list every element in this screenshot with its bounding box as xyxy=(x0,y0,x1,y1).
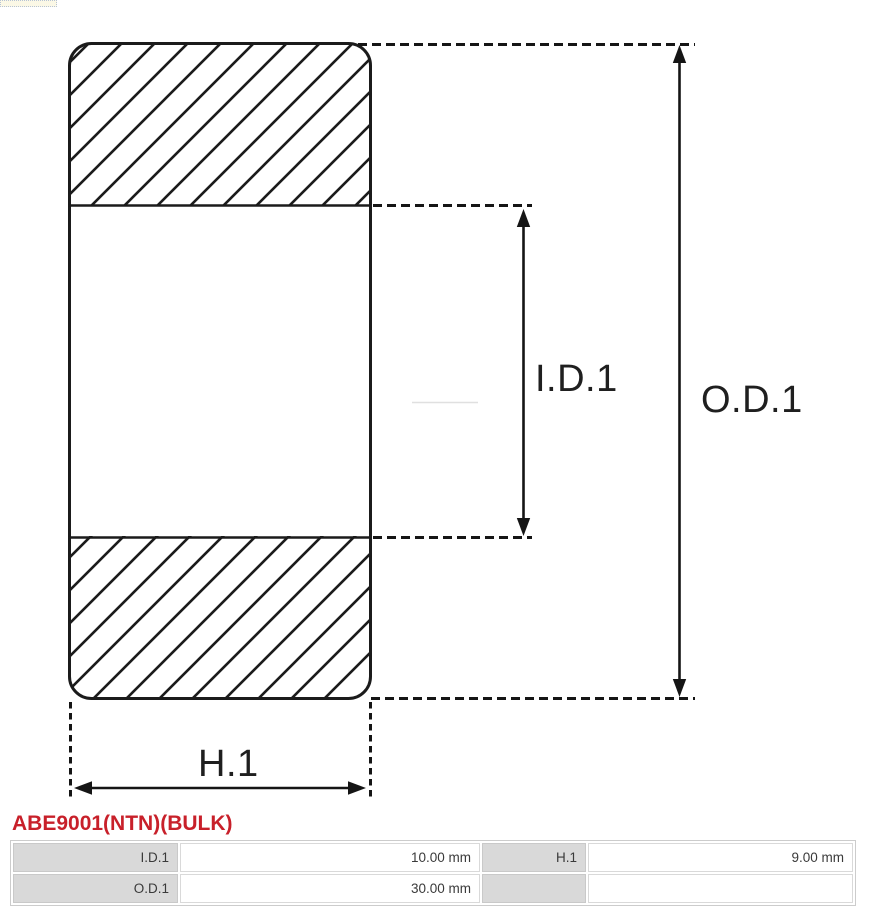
spec-label-cell: I.D.1 xyxy=(13,843,178,872)
arrowhead-right-icon xyxy=(348,781,366,794)
spec-label-cell: O.D.1 xyxy=(13,874,178,903)
spec-table-row: I.D.1 10.00 mm H.1 9.00 mm xyxy=(13,843,853,872)
id-dimension-label: I.D.1 xyxy=(535,360,618,398)
spec-table: I.D.1 10.00 mm H.1 9.00 mm O.D.1 30.00 m… xyxy=(10,840,856,906)
bearing-cross-section xyxy=(68,42,478,700)
id-dimension-arrow xyxy=(517,209,530,536)
part-number-title[interactable]: ABE9001(NTN)(BULK) xyxy=(12,812,233,835)
hatch-bottom-band xyxy=(68,536,372,700)
arrowhead-up-icon xyxy=(673,45,686,63)
arrowhead-left-icon xyxy=(74,781,92,794)
spec-value-cell xyxy=(588,874,853,903)
od-dimension-label: O.D.1 xyxy=(701,381,803,419)
spec-value-cell: 10.00 mm xyxy=(180,843,480,872)
spec-value-cell: 30.00 mm xyxy=(180,874,480,903)
arrowhead-down-icon xyxy=(673,679,686,697)
arrowhead-up-icon xyxy=(517,209,530,227)
od-dimension-arrow xyxy=(673,45,686,697)
arrowhead-down-icon xyxy=(517,518,530,536)
spec-value-cell: 9.00 mm xyxy=(588,843,853,872)
h-dimension-label: H.1 xyxy=(198,745,259,783)
spec-label-cell: H.1 xyxy=(482,843,586,872)
spec-table-row: O.D.1 30.00 mm xyxy=(13,874,853,903)
hatch-top-band xyxy=(68,42,372,206)
spec-label-cell xyxy=(482,874,586,903)
